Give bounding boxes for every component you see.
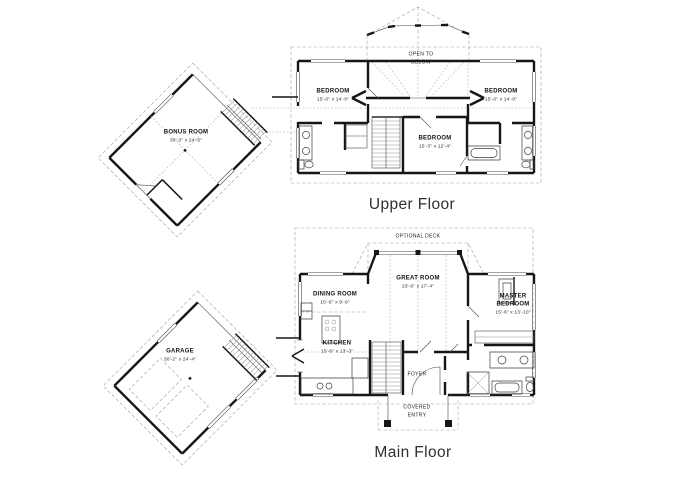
- bedroom-left-dims: 15'-0" x 14'-0": [316, 97, 349, 103]
- upper-floor-title: Upper Floor: [369, 196, 455, 214]
- bonus-room-outline: [98, 63, 272, 237]
- upper-left-bath-fixtures: [299, 125, 367, 169]
- room-label-garage: GARAGE 30'-2" x 24'-4": [164, 348, 196, 363]
- floor-plan-page: BONUS ROOM 30'-3" x 24'-5" BEDROOM 15'-0…: [0, 0, 700, 478]
- room-label-master-bedroom: MASTER BEDROOM 15'-6" x 13'-10": [490, 294, 536, 317]
- garage-outline: [103, 291, 277, 465]
- upper-interior-walls: [298, 61, 534, 173]
- main-connector-stairs: [223, 334, 270, 381]
- covered-entry-label: COVERED ENTRY: [395, 405, 439, 420]
- room-label-great-room: GREAT ROOM 23'-6" x 17'-4": [396, 275, 439, 290]
- bedroom-middle-dims: 15'-3" x 12'-4": [418, 144, 451, 150]
- floor-plan-drawing: [0, 0, 700, 478]
- upper-floor-plan: [98, 7, 541, 237]
- optional-deck-outline: [352, 243, 484, 274]
- upper-stairs: [372, 117, 403, 168]
- room-label-bedroom-left: BEDROOM 15'-0" x 14'-0": [316, 88, 349, 103]
- bedroom-middle-name: BEDROOM: [418, 135, 451, 143]
- room-label-bedroom-middle: BEDROOM 15'-3" x 12'-4": [418, 135, 451, 150]
- dining-room-dims: 15'-6" x 9'-6": [313, 300, 357, 306]
- foyer-label: FOYER: [408, 371, 427, 379]
- master-bedroom-dims: 15'-6" x 13'-10": [490, 310, 536, 316]
- garage-dims: 30'-2" x 24'-4": [164, 357, 196, 363]
- room-label-bonus-room: BONUS ROOM 30'-3" x 24'-5": [164, 129, 209, 144]
- kitchen-name: KITCHEN: [321, 340, 353, 348]
- bonus-room-name: BONUS ROOM: [164, 129, 209, 137]
- bonus-room-dims: 30'-3" x 24'-5": [164, 138, 209, 144]
- master-bath-fixtures: [467, 352, 534, 394]
- room-label-bedroom-right: BEDROOM 15'-0" x 14'-0": [484, 88, 517, 103]
- room-label-kitchen: KITCHEN 15'-6" x 13'-3": [321, 340, 353, 355]
- garage-name: GARAGE: [164, 348, 196, 356]
- main-floor-title: Main Floor: [374, 444, 451, 462]
- main-floor-plan: [103, 228, 535, 465]
- master-closet: [475, 331, 534, 343]
- upper-connector-stairs: [221, 99, 268, 146]
- bedroom-right-name: BEDROOM: [484, 88, 517, 96]
- bedroom-right-dims: 15'-0" x 14'-0": [484, 97, 517, 103]
- upper-overhang-outline: [291, 47, 541, 183]
- room-label-dining-room: DINING ROOM 15'-6" x 9'-6": [313, 291, 357, 306]
- main-stairs: [372, 342, 401, 393]
- dining-room-name: DINING ROOM: [313, 291, 357, 299]
- master-bedroom-name: MASTER BEDROOM: [490, 294, 536, 310]
- bedroom-left-name: BEDROOM: [316, 88, 349, 96]
- optional-deck-label: OPTIONAL DECK: [396, 233, 441, 241]
- main-interior-walls: [368, 274, 534, 395]
- great-room-name: GREAT ROOM: [396, 275, 439, 283]
- open-to-below-label: OPEN TO BELOW: [402, 52, 440, 67]
- great-room-dims: 23'-6" x 17'-4": [396, 284, 439, 290]
- kitchen-dims: 15'-6" x 13'-3": [321, 349, 353, 355]
